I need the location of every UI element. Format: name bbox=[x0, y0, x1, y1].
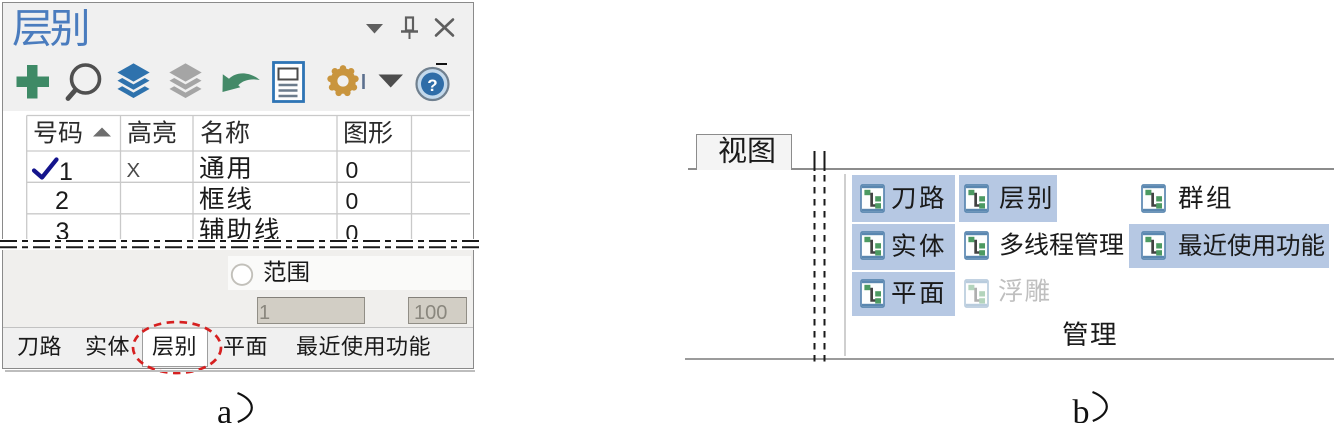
svg-text:?: ? bbox=[427, 76, 437, 95]
